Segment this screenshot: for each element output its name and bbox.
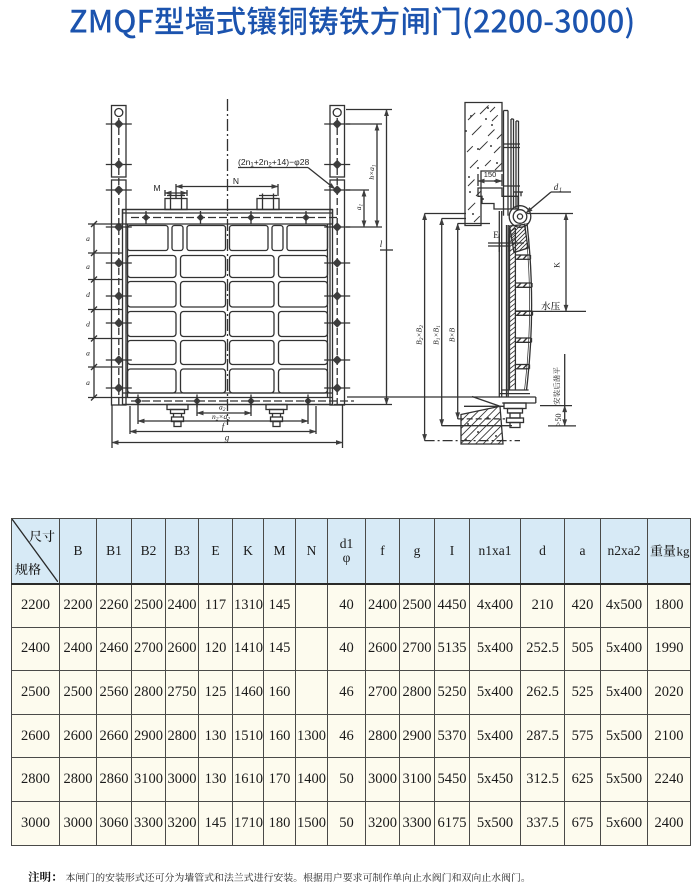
svg-text:d: d bbox=[554, 182, 559, 192]
svg-text:a: a bbox=[86, 348, 90, 357]
svg-text:a1: a1 bbox=[354, 204, 365, 211]
svg-text:M: M bbox=[153, 183, 160, 193]
svg-text:l: l bbox=[380, 239, 383, 249]
svg-text:>50: >50 bbox=[554, 413, 563, 426]
svg-text:a: a bbox=[86, 234, 90, 243]
svg-text:d: d bbox=[86, 320, 90, 329]
svg-text:150: 150 bbox=[484, 170, 497, 179]
svg-text:B1×B1: B1×B1 bbox=[432, 325, 443, 345]
svg-text:(2n1+2n2+14)−φ28: (2n1+2n2+14)−φ28 bbox=[238, 157, 309, 169]
svg-text:kg: kg bbox=[677, 543, 691, 558]
svg-text:K: K bbox=[553, 262, 562, 268]
svg-text:a: a bbox=[86, 378, 90, 387]
svg-text:E: E bbox=[493, 230, 499, 240]
svg-text:d: d bbox=[86, 290, 90, 299]
svg-text:N: N bbox=[233, 176, 239, 186]
svg-text:f: f bbox=[222, 422, 226, 432]
svg-text:a: a bbox=[86, 262, 90, 271]
svg-text:B2×B2: B2×B2 bbox=[415, 325, 426, 345]
svg-text:g: g bbox=[225, 433, 230, 443]
svg-text:h×a1: h×a1 bbox=[367, 164, 378, 180]
svg-text:B×B: B×B bbox=[448, 327, 457, 342]
